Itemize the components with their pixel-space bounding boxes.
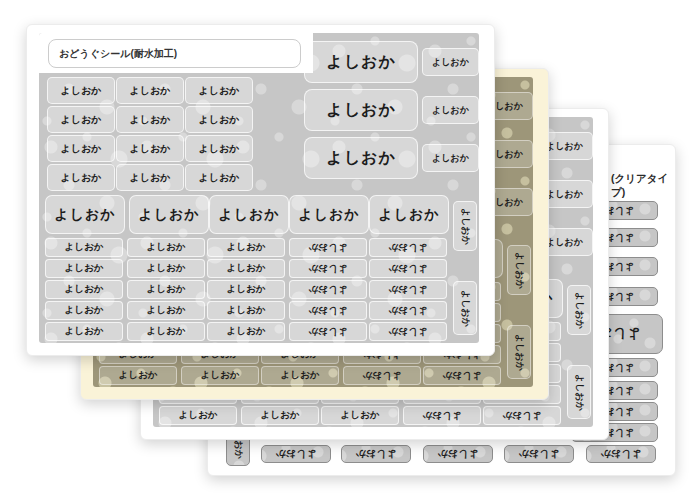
name-sticker-vertical: よしおか (507, 245, 531, 295)
sticker-text: よしおか (309, 241, 348, 254)
sticker-text: よしおか (389, 262, 428, 275)
sticker-text: よしおか (130, 113, 171, 127)
sticker-text: よしおか (438, 447, 479, 461)
sheet-type-label: (クリアタイプ) (611, 172, 675, 200)
name-sticker-small: よしおか (261, 366, 339, 385)
sticker-text: よしおか (443, 369, 482, 382)
sticker-text: よしおか (130, 171, 171, 185)
sticker-text: よしおか (61, 171, 102, 185)
sticker-text: よしおか (199, 113, 240, 127)
sticker-text: よしおか (61, 142, 102, 156)
sticker-text: よしおか (199, 84, 240, 98)
sticker-text: よしおか (389, 325, 428, 338)
name-sticker-small: よしおか (127, 280, 205, 299)
name-sticker-rotated: よしおか (289, 280, 367, 299)
name-sticker-medium: よしおか (116, 135, 184, 162)
sticker-text: よしおか (423, 409, 462, 422)
name-sticker-small: よしおか (207, 259, 285, 278)
name-sticker-small: よしおか (127, 238, 205, 257)
sticker-text: よしおか (227, 283, 266, 296)
name-sticker-medium: よしおか (185, 77, 253, 104)
name-sticker-rotated: よしおか (289, 301, 367, 320)
sticker-text: よしおか (546, 236, 583, 249)
name-sticker-small: よしおか (45, 280, 123, 299)
sticker-text: よしおか (573, 292, 586, 329)
name-sticker-vertical: よしおか (567, 285, 591, 335)
sticker-text: よしおか (309, 262, 348, 275)
name-sticker-rotated: よしおか (289, 238, 367, 257)
name-sticker-medium: よしおか (47, 77, 115, 104)
name-sticker-medium: よしおか (116, 164, 184, 191)
name-sticker-small: よしおか (321, 406, 399, 425)
name-sticker-rotated: よしおか (369, 238, 447, 257)
sticker-text: よしおか (432, 152, 469, 165)
name-sticker-vertical: よしおか (507, 325, 531, 379)
name-sticker-small: よしおか (45, 322, 123, 341)
sticker-text: よしおか (341, 409, 380, 422)
name-sticker-medium: よしおか (185, 135, 253, 162)
sticker-text: よしおか (179, 409, 218, 422)
sticker-text: よしおか (432, 104, 469, 117)
name-sticker-rotated: よしおか (343, 366, 421, 385)
name-sticker-small: よしおか (207, 322, 285, 341)
sticker-text: よしおか (298, 206, 359, 224)
name-sticker-rotated: よしおか (369, 280, 447, 299)
sticker-text: よしおか (227, 304, 266, 317)
sticker-text: よしおか (513, 334, 526, 371)
sticker-text: よしおか (227, 262, 266, 275)
sticker-text: よしおか (227, 241, 266, 254)
name-sticker-medium: よしおか (185, 164, 253, 191)
clear-name-sticker-rotated: よしおか (586, 445, 656, 463)
name-sticker-medium: よしおか (47, 164, 115, 191)
name-sticker-small: よしおか (45, 301, 123, 320)
name-sticker-large: よしおか (304, 41, 418, 83)
clear-name-sticker-rotated: よしおか (341, 445, 411, 463)
name-sticker-large: よしおか (304, 137, 418, 179)
sticker-text: よしおか (147, 241, 186, 254)
sticker-text: よしおか (130, 142, 171, 156)
sheet-title-text: おどうぐシール(耐水加工) (59, 47, 177, 61)
sticker-text: よしおか (61, 84, 102, 98)
name-sticker-medium-large: よしおか (369, 195, 449, 234)
sticker-text: よしおか (503, 409, 542, 422)
sticker-text: よしおか (356, 447, 397, 461)
name-sticker-small: よしおか (207, 238, 285, 257)
sticker-text: よしおか (389, 304, 428, 317)
sticker-text: よしおか (54, 206, 115, 224)
sticker-text: よしおか (65, 262, 104, 275)
name-sticker-small: よしおか (422, 48, 479, 76)
sticker-text: よしおか (309, 304, 348, 317)
sticker-text: よしおか (326, 148, 396, 169)
name-sticker-medium: よしおか (116, 106, 184, 133)
sticker-text: よしおか (281, 369, 320, 382)
name-sticker-vertical: よしおか (567, 365, 591, 419)
clear-name-sticker-rotated: よしおか (504, 445, 574, 463)
sticker-text: よしおか (519, 447, 560, 461)
sticker-text: よしおか (138, 206, 199, 224)
sticker-text: よしおか (309, 325, 348, 338)
sticker-text: よしおか (147, 325, 186, 338)
name-sticker-small: よしおか (127, 259, 205, 278)
sticker-text: よしおか (147, 283, 186, 296)
name-sticker-vertical: よしおか (453, 201, 477, 251)
name-sticker-medium: よしおか (47, 135, 115, 162)
sticker-text: よしおか (199, 171, 240, 185)
sticker-text: よしおか (378, 206, 439, 224)
sticker-text: よしおか (199, 142, 240, 156)
name-sticker-medium-large: よしおか (209, 195, 289, 234)
sticker-sheet-preview: (クリアタイプ) よしおかよしおかよしおかよしおかよしおかよしおかよしおかよしお… (0, 0, 700, 500)
sticker-text: よしおか (65, 241, 104, 254)
sticker-text: よしおか (326, 100, 396, 121)
sticker-sheet-card-1-waterproof[interactable]: よしおかよしおかよしおかよしおかよしおかよしおかよしおかよしおかよしおかよしおか… (26, 24, 495, 356)
sticker-text: よしおか (309, 283, 348, 296)
name-sticker-vertical: よしおか (453, 281, 477, 335)
sticker-text: よしおか (363, 369, 402, 382)
sticker-text: よしおか (573, 374, 586, 411)
sticker-text: よしおか (513, 252, 526, 289)
sticker-text: よしおか (119, 369, 158, 382)
name-sticker-rotated: よしおか (369, 259, 447, 278)
sticker-text: よしおか (218, 206, 279, 224)
name-sticker-small: よしおか (422, 144, 479, 172)
name-sticker-medium-large: よしおか (289, 195, 369, 234)
clear-name-sticker-rotated: よしおか (261, 445, 331, 463)
sticker-text: よしおか (201, 369, 240, 382)
sticker-text: よしおか (546, 140, 583, 153)
name-sticker-small: よしおか (181, 366, 259, 385)
name-sticker-medium-large: よしおか (45, 195, 125, 234)
name-sticker-small: よしおか (45, 238, 123, 257)
sticker-text: よしおか (65, 325, 104, 338)
sticker-text: よしおか (65, 283, 104, 296)
name-sticker-medium: よしおか (185, 106, 253, 133)
sticker-text: よしおか (261, 409, 300, 422)
name-sticker-rotated: よしおか (369, 322, 447, 341)
sticker-text: よしおか (432, 56, 469, 69)
name-sticker-rotated: よしおか (403, 406, 481, 425)
name-sticker-small: よしおか (127, 322, 205, 341)
name-sticker-rotated: よしおか (369, 301, 447, 320)
name-sticker-small: よしおか (159, 406, 237, 425)
name-sticker-small: よしおか (127, 301, 205, 320)
sticker-text: よしおか (459, 290, 472, 327)
name-sticker-small: よしおか (241, 406, 319, 425)
clear-name-sticker-rotated: よしおか (423, 445, 493, 463)
sticker-text: よしおか (546, 188, 583, 201)
name-sticker-rotated: よしおか (289, 259, 367, 278)
name-sticker-small: よしおか (99, 366, 177, 385)
sticker-text: よしおか (389, 241, 428, 254)
sticker-text: よしおか (227, 325, 266, 338)
sticker-text: よしおか (601, 447, 642, 461)
sticker-text: よしおか (276, 447, 317, 461)
sticker-text: よしおか (326, 52, 396, 73)
sticker-sheet-gray: よしおかよしおかよしおかよしおかよしおかよしおかよしおかよしおかよしおかよしおか… (39, 33, 479, 343)
sheet-title-label: おどうぐシール(耐水加工) (48, 39, 301, 68)
sticker-text: よしおか (147, 262, 186, 275)
sticker-text: よしおか (389, 283, 428, 296)
name-sticker-small: よしおか (422, 96, 479, 124)
sticker-text: よしおか (147, 304, 186, 317)
name-sticker-small: よしおか (207, 301, 285, 320)
name-sticker-rotated: よしおか (423, 366, 501, 385)
name-sticker-small: よしおか (45, 259, 123, 278)
name-sticker-large: よしおか (304, 89, 418, 131)
name-sticker-rotated: よしおか (483, 406, 561, 425)
sticker-text: よしおか (65, 304, 104, 317)
name-sticker-rotated: よしおか (289, 322, 367, 341)
sticker-text: よしおか (130, 84, 171, 98)
sticker-text: よしおか (459, 208, 472, 245)
name-sticker-medium: よしおか (47, 106, 115, 133)
sticker-text: よしおか (61, 113, 102, 127)
name-sticker-medium-large: よしおか (129, 195, 209, 234)
name-sticker-medium: よしおか (116, 77, 184, 104)
name-sticker-small: よしおか (207, 280, 285, 299)
